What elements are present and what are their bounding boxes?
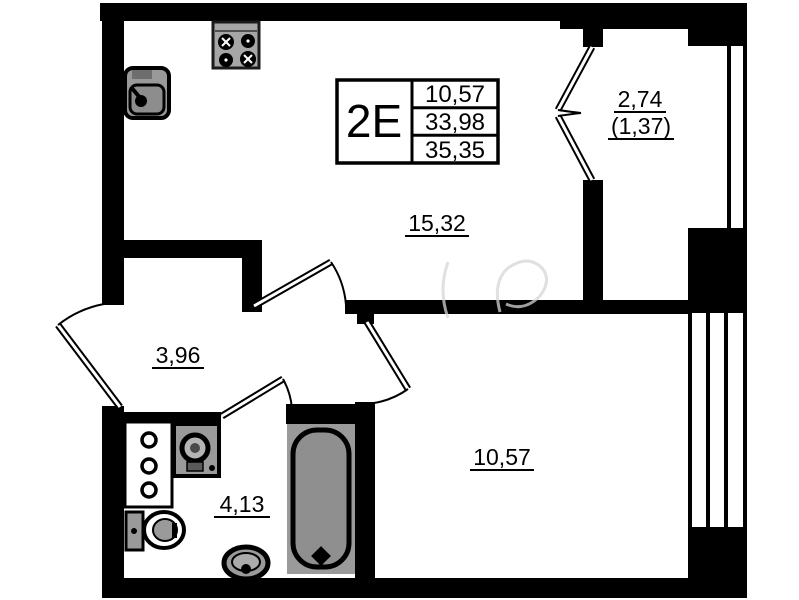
toilet (126, 512, 184, 550)
wall-tub-top (286, 404, 356, 424)
hall-area-label: 3,96 (156, 342, 201, 368)
bedroom-window-line-3 (724, 313, 728, 527)
wall-bath-bedroom (355, 402, 375, 578)
kitchen-sink (125, 68, 169, 118)
washing-machine (174, 424, 219, 476)
entrance-door-arc (58, 304, 104, 325)
balcony-window-outer-line (743, 45, 747, 229)
wall-left-lower (102, 406, 124, 598)
balcony-french-door (558, 47, 592, 180)
unit-value-room: 10,57 (425, 81, 485, 108)
bathroom-door (222, 379, 292, 416)
bedroom-area-label: 10,57 (473, 444, 531, 470)
bedroom-window-line-2 (706, 313, 710, 527)
bedroom-window-line-1 (688, 313, 692, 527)
wall-balcony-jamb-top (583, 20, 603, 47)
living-room-door-arc (331, 262, 346, 305)
unit-value-total: 35,35 (425, 137, 485, 164)
balcony-area-label: 2,74 (618, 86, 663, 112)
wall-corner-top-right (688, 3, 747, 46)
bathroom-sink (224, 547, 268, 579)
wall-hall-kitchen (123, 240, 262, 258)
balcony-window-inner-line (727, 45, 731, 229)
balcony-area-secondary-label: (1,37) (611, 113, 671, 139)
wall-bottom (102, 578, 747, 598)
wall-pillar-right (688, 228, 747, 313)
wall-left-upper (102, 3, 124, 305)
floorplan: 2E 10,57 33,98 35,35 15,32 2,74 (1,37) 3… (0, 0, 799, 600)
living-room-door (254, 262, 346, 306)
wall-corner-bottom-right (688, 527, 747, 598)
unit-value-living: 33,98 (425, 109, 485, 136)
bathroom-area-label: 4,13 (220, 491, 265, 517)
bedroom-door-arc (374, 389, 408, 403)
floorplan-drawing: 2E 10,57 33,98 35,35 15,32 2,74 (1,37) 3… (0, 0, 799, 600)
unit-type-label: 2E (346, 95, 402, 147)
wall-bedroom-door-jamb (357, 314, 374, 324)
bath-cabinet (125, 422, 172, 507)
title-block: 2E 10,57 33,98 35,35 (337, 80, 498, 164)
wall-balcony-left (583, 180, 603, 314)
bedroom-window-line-4 (743, 313, 747, 527)
entrance-door (58, 304, 120, 407)
bedroom-door (367, 322, 408, 403)
living-area-label: 15,32 (408, 210, 466, 236)
stove (213, 22, 259, 68)
bathtub (287, 424, 355, 574)
